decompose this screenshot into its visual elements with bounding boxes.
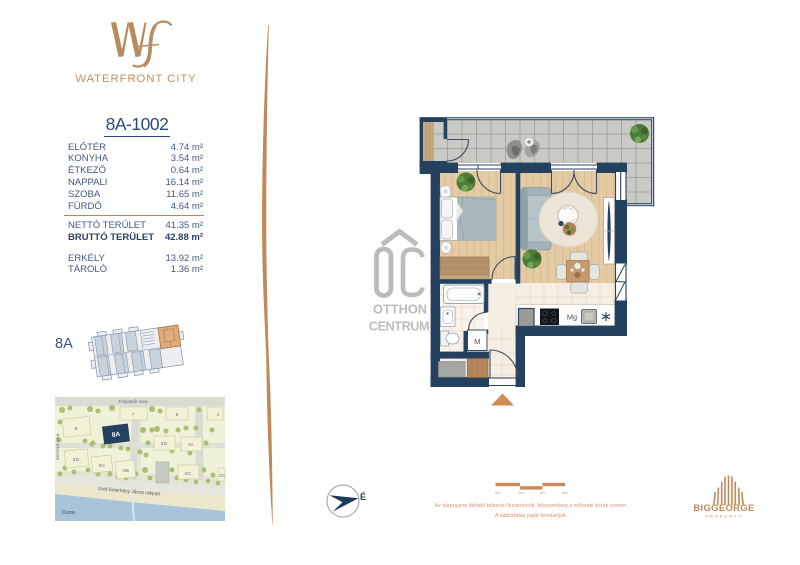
svg-text:6D: 6D xyxy=(73,457,80,463)
svg-text:5A: 5A xyxy=(188,442,195,448)
svg-text:3C: 3C xyxy=(219,473,226,479)
svg-text:8B: 8B xyxy=(123,468,129,474)
svg-text:2m: 2m xyxy=(540,490,546,495)
svg-text:CENTRUM: CENTRUM xyxy=(369,320,429,334)
svg-text:Duna: Duna xyxy=(62,510,75,516)
svg-text:8A: 8A xyxy=(112,431,121,439)
svg-text:OTTHON: OTTHON xyxy=(373,302,427,317)
svg-text:8C: 8C xyxy=(99,463,106,469)
svg-text:Sorompó utca: Sorompó utca xyxy=(55,433,60,460)
svg-text:6C: 6C xyxy=(185,471,192,477)
svg-text:B: B xyxy=(74,426,77,432)
svg-text:É: É xyxy=(360,492,366,502)
svg-text:5: 5 xyxy=(176,412,179,418)
svg-text:7: 7 xyxy=(132,412,135,418)
svg-text:M: M xyxy=(474,337,480,346)
svg-text:6D: 6D xyxy=(161,441,168,447)
svg-text:Folyamőr utca: Folyamőr utca xyxy=(118,399,148,404)
svg-text:4: 4 xyxy=(217,412,220,418)
svg-text:3m: 3m xyxy=(562,490,568,495)
svg-text:0m: 0m xyxy=(495,490,501,495)
svg-text:Mg: Mg xyxy=(567,313,577,322)
svg-text:1m: 1m xyxy=(518,490,524,495)
